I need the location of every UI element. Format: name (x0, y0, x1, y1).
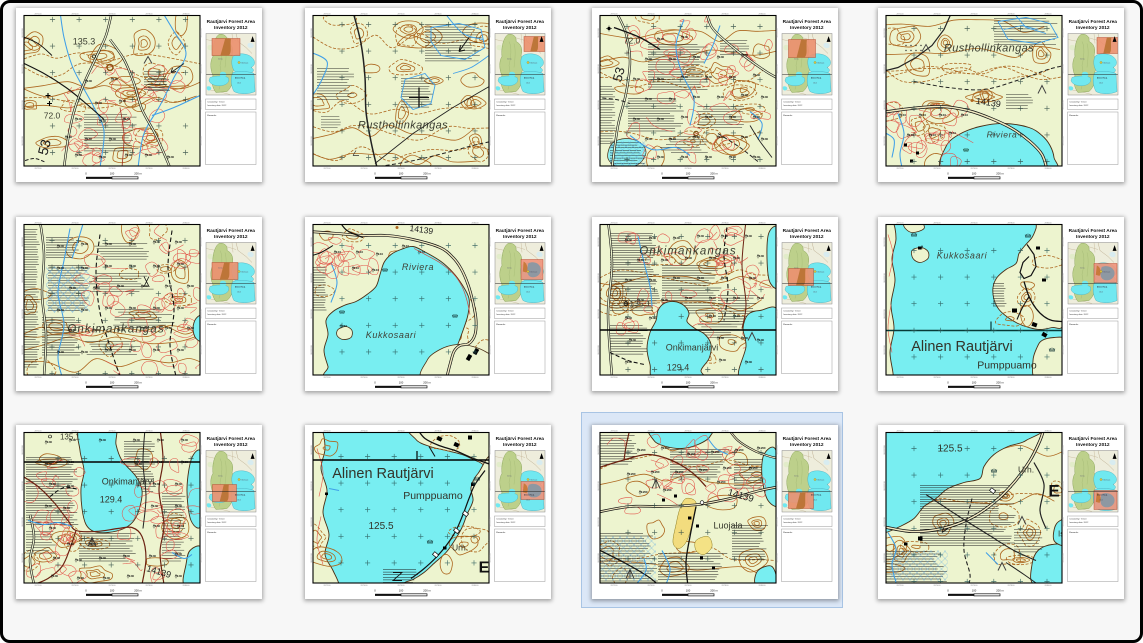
svg-text:287600: 287600 (109, 585, 117, 587)
svg-text:287800: 287800 (146, 431, 154, 433)
svg-text:68122300: 68122300 (776, 553, 778, 563)
svg-text:68122000: 68122000 (884, 28, 886, 38)
svg-text:Pumppuamo: Pumppuamo (977, 360, 1037, 372)
svg-text:0.30: 0.30 (179, 348, 185, 352)
svg-text:125.5: 125.5 (526, 500, 530, 502)
svg-text:0: 0 (947, 589, 949, 593)
svg-text:0: 0 (374, 381, 376, 385)
svg-text:0.30: 0.30 (627, 360, 633, 364)
svg-text:Inventory date: 2012: Inventory date: 2012 (207, 313, 227, 316)
svg-text:0.30: 0.30 (159, 438, 165, 442)
svg-text:Inventory 2012: Inventory 2012 (1076, 234, 1110, 240)
svg-text:287600: 287600 (398, 168, 406, 170)
svg-text:0.30: 0.30 (683, 35, 689, 39)
svg-text:0.30: 0.30 (735, 314, 741, 318)
svg-text:287400: 287400 (361, 431, 369, 433)
svg-text:100: 100 (110, 172, 115, 176)
svg-text:68122100: 68122100 (200, 64, 202, 74)
svg-text:68122100: 68122100 (884, 64, 886, 74)
svg-text:68122300: 68122300 (200, 553, 202, 563)
svg-text:0.30: 0.30 (723, 234, 729, 238)
svg-text:68122200: 68122200 (22, 100, 24, 110)
svg-text:0.10: 0.10 (951, 131, 957, 135)
svg-text:Onkimaan: Onkimaan (530, 480, 538, 482)
svg-text:68122000: 68122000 (884, 237, 886, 247)
svg-text:200 m: 200 m (134, 172, 142, 176)
svg-text:0.30: 0.30 (129, 574, 135, 578)
svg-text:Inventory date: 2012: Inventory date: 2012 (783, 104, 803, 107)
svg-text:0.30: 0.30 (711, 314, 717, 318)
svg-text:0.30: 0.30 (155, 524, 161, 528)
svg-text:Created by: T.User: Created by: T.User (496, 518, 514, 521)
svg-text:288000: 288000 (759, 14, 767, 16)
svg-text:68122100: 68122100 (311, 273, 313, 283)
svg-text:200 m: 200 m (423, 589, 431, 593)
svg-text:0.30: 0.30 (79, 576, 85, 580)
svg-text:Remarks:: Remarks: (783, 323, 793, 326)
svg-text:E: E (1048, 482, 1059, 501)
svg-text:125.5: 125.5 (813, 292, 817, 294)
svg-text:metsa: metsa (1080, 267, 1085, 270)
svg-text:287800: 287800 (1008, 168, 1016, 170)
svg-text:Alinen Rautj.: Alinen Rautj. (811, 286, 822, 289)
svg-text:100: 100 (686, 589, 691, 593)
svg-text:0.30: 0.30 (663, 298, 669, 302)
svg-text:0.30: 0.30 (169, 155, 175, 159)
svg-text:Onkimanjärvi: Onkimanjärvi (102, 477, 155, 487)
svg-text:0.30: 0.30 (189, 326, 195, 330)
svg-text:68122000: 68122000 (22, 28, 24, 38)
svg-text:Alinen Rautj.: Alinen Rautj. (811, 494, 822, 497)
svg-text:0.10: 0.10 (358, 250, 364, 254)
svg-text:Created by: T.User: Created by: T.User (783, 310, 801, 313)
svg-text:0: 0 (85, 381, 87, 385)
svg-text:68122100: 68122100 (598, 273, 600, 283)
svg-text:68122100: 68122100 (200, 481, 202, 491)
svg-text:287800: 287800 (435, 168, 443, 170)
svg-text:0.30: 0.30 (101, 556, 107, 560)
svg-text:125.5: 125.5 (1099, 83, 1103, 85)
svg-text:287200: 287200 (611, 14, 619, 16)
svg-text:0.30: 0.30 (151, 554, 157, 558)
svg-text:125.5: 125.5 (937, 444, 962, 455)
svg-text:125.5: 125.5 (237, 500, 241, 502)
svg-text:Urh.: Urh. (1018, 465, 1034, 475)
svg-text:287200: 287200 (35, 223, 43, 225)
svg-text:287400: 287400 (648, 168, 656, 170)
svg-text:200 m: 200 m (996, 381, 1004, 385)
svg-text:125.5: 125.5 (813, 500, 817, 502)
svg-text:Alinen Rautjärvi: Alinen Rautjärvi (911, 339, 1013, 355)
svg-text:Remarks:: Remarks: (496, 114, 506, 117)
svg-text:68122100: 68122100 (22, 273, 24, 283)
svg-text:68122300: 68122300 (884, 345, 886, 355)
svg-text:288000: 288000 (472, 168, 480, 170)
svg-text:Alinen Rautj.: Alinen Rautj. (1097, 494, 1108, 497)
svg-text:287800: 287800 (722, 585, 730, 587)
svg-text:287600: 287600 (398, 431, 406, 433)
svg-text:68122100: 68122100 (489, 481, 491, 491)
svg-text:0.30: 0.30 (671, 97, 677, 101)
svg-text:200 m: 200 m (423, 381, 431, 385)
svg-text:287600: 287600 (109, 14, 117, 16)
svg-text:Created by: T.User: Created by: T.User (783, 101, 801, 104)
svg-text:Rautjärvi Forest Area: Rautjärvi Forest Area (783, 228, 832, 234)
svg-text:Remarks:: Remarks: (207, 323, 217, 326)
svg-text:0.10: 0.10 (921, 113, 927, 117)
svg-text:0.200: 0.200 (677, 470, 684, 474)
svg-text:Inventory date: 2012: Inventory date: 2012 (1069, 104, 1089, 107)
svg-text:0.30: 0.30 (659, 77, 665, 81)
svg-text:Onkimaan: Onkimaan (530, 272, 538, 274)
svg-text:0.30: 0.30 (67, 135, 73, 139)
svg-text:200 m: 200 m (134, 589, 142, 593)
svg-text:68122000: 68122000 (1062, 445, 1064, 455)
svg-text:68122300: 68122300 (22, 345, 24, 355)
svg-text:287400: 287400 (934, 377, 942, 379)
svg-text:287600: 287600 (398, 585, 406, 587)
svg-text:Created by: T.User: Created by: T.User (1069, 310, 1087, 313)
svg-text:287800: 287800 (722, 14, 730, 16)
svg-text:Rautjärvi Forest Area: Rautjärvi Forest Area (496, 228, 545, 234)
svg-text:0.30: 0.30 (699, 276, 705, 280)
svg-text:135.3: 135.3 (73, 37, 96, 47)
svg-text:Inventory 2012: Inventory 2012 (503, 234, 537, 240)
svg-text:287800: 287800 (722, 223, 730, 225)
svg-text:0.30: 0.30 (69, 542, 75, 546)
svg-text:0.30: 0.30 (107, 348, 113, 352)
svg-text:0.10: 0.10 (342, 324, 348, 328)
svg-text:0.30: 0.30 (671, 57, 677, 61)
svg-text:287400: 287400 (648, 14, 656, 16)
svg-text:200 m: 200 m (423, 172, 431, 176)
svg-text:0.200: 0.200 (725, 466, 732, 470)
svg-text:0: 0 (374, 589, 376, 593)
svg-text:Inventory 2012: Inventory 2012 (790, 234, 824, 240)
svg-text:287200: 287200 (611, 168, 619, 170)
svg-text:0.30: 0.30 (719, 95, 725, 99)
svg-text:Inventory 2012: Inventory 2012 (214, 442, 248, 448)
svg-text:68122000: 68122000 (1062, 237, 1064, 247)
svg-text:0.30: 0.30 (59, 266, 65, 270)
svg-text:100: 100 (686, 381, 691, 385)
svg-text:0.30: 0.30 (107, 306, 113, 310)
svg-text:287600: 287600 (685, 585, 693, 587)
svg-text:68122200: 68122200 (311, 517, 313, 527)
svg-text:Rusthollinkangas: Rusthollinkangas (944, 43, 1034, 55)
svg-text:288000: 288000 (759, 377, 767, 379)
svg-text:287200: 287200 (324, 168, 332, 170)
svg-text:Created by: T.User: Created by: T.User (207, 310, 225, 313)
svg-text:0.30: 0.30 (71, 286, 77, 290)
svg-text:0.10: 0.10 (901, 113, 907, 117)
svg-text:287200: 287200 (897, 585, 905, 587)
svg-text:68122300: 68122300 (884, 136, 886, 146)
svg-text:0.200: 0.200 (665, 488, 672, 492)
svg-text:Remarks:: Remarks: (496, 323, 506, 326)
svg-text:metsa: metsa (1080, 58, 1085, 61)
svg-text:Onkimankangas: Onkimankangas (67, 324, 164, 336)
svg-text:0.30: 0.30 (647, 97, 653, 101)
svg-text:287400: 287400 (72, 14, 80, 16)
svg-text:Is: Is (1058, 530, 1064, 539)
svg-text:0.30: 0.30 (695, 55, 701, 59)
svg-text:288000: 288000 (1045, 14, 1053, 16)
svg-text:287200: 287200 (897, 377, 905, 379)
svg-text:Rautjärvi Forest Area: Rautjärvi Forest Area (496, 19, 545, 25)
svg-text:0.30: 0.30 (155, 482, 161, 486)
svg-text:0.30: 0.30 (83, 266, 89, 270)
svg-text:0.200: 0.200 (639, 448, 646, 452)
svg-text:287400: 287400 (934, 168, 942, 170)
svg-text:0.30: 0.30 (723, 276, 729, 280)
svg-text:Created by: T.User: Created by: T.User (1069, 518, 1087, 521)
svg-text:287400: 287400 (934, 14, 942, 16)
svg-text:0.30: 0.30 (659, 117, 665, 121)
svg-text:287600: 287600 (685, 377, 693, 379)
svg-text:68122000: 68122000 (311, 237, 313, 247)
svg-text:0.200: 0.200 (629, 472, 636, 476)
svg-text:0.200: 0.200 (653, 470, 660, 474)
svg-text:0.30: 0.30 (177, 552, 183, 556)
svg-text:Onkimaan: Onkimaan (241, 480, 249, 482)
svg-text:68122000: 68122000 (200, 28, 202, 38)
svg-text:287800: 287800 (146, 223, 154, 225)
svg-text:0.30: 0.30 (137, 462, 143, 466)
svg-text:0: 0 (661, 589, 663, 593)
svg-text:287600: 287600 (971, 14, 979, 16)
svg-text:0.200: 0.200 (759, 446, 766, 450)
svg-text:Inventory 2012: Inventory 2012 (790, 25, 824, 31)
svg-text:68122200: 68122200 (22, 517, 24, 527)
svg-text:0.30: 0.30 (189, 284, 195, 288)
svg-text:0.30: 0.30 (763, 95, 769, 99)
svg-text:Onkimanjärvi: Onkimanjärvi (666, 343, 719, 353)
svg-text:287400: 287400 (648, 223, 656, 225)
svg-text:0.30: 0.30 (755, 73, 761, 77)
svg-text:287600: 287600 (685, 14, 693, 16)
svg-text:0.30: 0.30 (167, 284, 173, 288)
svg-text:0.30: 0.30 (751, 276, 757, 280)
svg-text:0.30: 0.30 (675, 276, 681, 280)
svg-text:Inventory 2012: Inventory 2012 (790, 442, 824, 448)
svg-text:0.200: 0.200 (701, 468, 708, 472)
svg-text:287600: 287600 (109, 431, 117, 433)
svg-text:0.30: 0.30 (719, 55, 725, 59)
svg-text:68122200: 68122200 (598, 309, 600, 319)
svg-text:Alinen Rautj.: Alinen Rautj. (524, 494, 535, 497)
svg-text:68122000: 68122000 (489, 445, 491, 455)
svg-text:Alinen Rautj.: Alinen Rautj. (524, 77, 535, 80)
svg-text:68122200: 68122200 (1062, 309, 1064, 319)
svg-text:287200: 287200 (324, 431, 332, 433)
svg-text:68122000: 68122000 (776, 445, 778, 455)
svg-text:Inventory 2012: Inventory 2012 (214, 234, 248, 240)
svg-text:287600: 287600 (685, 223, 693, 225)
svg-text:287200: 287200 (35, 377, 43, 379)
svg-text:68122000: 68122000 (598, 445, 600, 455)
svg-text:0.200: 0.200 (713, 450, 720, 454)
svg-text:Onkimaan: Onkimaan (817, 63, 825, 65)
svg-text:287400: 287400 (934, 223, 942, 225)
svg-text:0.30: 0.30 (639, 258, 645, 262)
svg-text:0.30: 0.30 (759, 296, 765, 300)
svg-text:0.30: 0.30 (647, 137, 653, 141)
svg-text:0.30: 0.30 (763, 137, 769, 141)
svg-text:Rautjärvi Forest Area: Rautjärvi Forest Area (207, 19, 256, 25)
svg-text:Rautjärvi Forest Area: Rautjärvi Forest Area (783, 19, 832, 25)
svg-text:0.10: 0.10 (354, 266, 360, 270)
svg-text:287800: 287800 (146, 377, 154, 379)
svg-text:68122200: 68122200 (776, 100, 778, 110)
svg-text:68122300: 68122300 (200, 136, 202, 146)
svg-text:0.30: 0.30 (671, 137, 677, 141)
svg-text:Alinen Rautj.: Alinen Rautj. (1097, 77, 1108, 80)
svg-text:68122200: 68122200 (1062, 100, 1064, 110)
svg-text:287200: 287200 (324, 585, 332, 587)
svg-text:0: 0 (374, 172, 376, 176)
svg-text:0.30: 0.30 (107, 242, 113, 246)
svg-text:200 m: 200 m (996, 172, 1004, 176)
svg-text:287600: 287600 (109, 168, 117, 170)
svg-text:287600: 287600 (398, 14, 406, 16)
svg-text:68122300: 68122300 (311, 345, 313, 355)
svg-text:287400: 287400 (648, 431, 656, 433)
svg-text:287200: 287200 (611, 377, 619, 379)
svg-text:metsa: metsa (794, 475, 799, 478)
svg-text:288000: 288000 (183, 377, 191, 379)
svg-text:287400: 287400 (72, 377, 80, 379)
svg-text:0.30: 0.30 (177, 574, 183, 578)
svg-text:68122200: 68122200 (1062, 517, 1064, 527)
svg-text:Created by: T.User: Created by: T.User (496, 101, 514, 104)
svg-text:68122000: 68122000 (1062, 28, 1064, 38)
svg-text:Inventory date: 2012: Inventory date: 2012 (783, 521, 803, 524)
svg-text:68122100: 68122100 (598, 64, 600, 74)
svg-text:68122100: 68122100 (1062, 273, 1064, 283)
svg-text:287200: 287200 (324, 14, 332, 16)
svg-text:metsa: metsa (794, 58, 799, 61)
svg-text:0.30: 0.30 (719, 336, 725, 340)
svg-text:0.30: 0.30 (687, 296, 693, 300)
svg-text:288000: 288000 (1045, 431, 1053, 433)
svg-text:68122300: 68122300 (311, 136, 313, 146)
svg-text:287600: 287600 (971, 223, 979, 225)
svg-text:287800: 287800 (1008, 223, 1016, 225)
svg-text:287600: 287600 (971, 377, 979, 379)
svg-text:100: 100 (399, 172, 404, 176)
svg-text:0: 0 (947, 172, 949, 176)
svg-text:Pumppuamo: Pumppuamo (403, 490, 463, 502)
svg-text:68122100: 68122100 (884, 481, 886, 491)
svg-text:Inventory 2012: Inventory 2012 (1076, 25, 1110, 31)
svg-text:Alinen Rautj.: Alinen Rautj. (235, 286, 246, 289)
svg-text:68122300: 68122300 (598, 345, 600, 355)
svg-text:287200: 287200 (324, 223, 332, 225)
svg-text:0.200: 0.200 (689, 452, 696, 456)
svg-text:129.4: 129.4 (667, 363, 690, 373)
svg-text:0.30: 0.30 (719, 135, 725, 139)
svg-text:100: 100 (972, 381, 977, 385)
svg-text:0.30: 0.30 (179, 306, 185, 310)
svg-text:68122200: 68122200 (200, 100, 202, 110)
svg-text:287200: 287200 (897, 14, 905, 16)
svg-text:288000: 288000 (472, 431, 480, 433)
svg-text:100: 100 (972, 589, 977, 593)
svg-text:0.30: 0.30 (743, 135, 749, 139)
svg-text:metsa: metsa (507, 267, 512, 270)
svg-text:68122300: 68122300 (200, 345, 202, 355)
svg-text:135.1: 135.1 (60, 433, 81, 442)
svg-text:68122000: 68122000 (311, 445, 313, 455)
svg-text:0.30: 0.30 (159, 460, 165, 464)
svg-text:288000: 288000 (183, 168, 191, 170)
svg-text:0.30: 0.30 (759, 338, 765, 342)
svg-text:Rautjärvi Forest Area: Rautjärvi Forest Area (207, 436, 256, 442)
svg-text:0.30: 0.30 (69, 484, 75, 488)
svg-text:Rautjärvi Forest Area: Rautjärvi Forest Area (1069, 19, 1118, 25)
svg-text:Inventory date: 2012: Inventory date: 2012 (1069, 313, 1089, 316)
svg-text:0.30: 0.30 (59, 308, 65, 312)
svg-text:68122200: 68122200 (776, 517, 778, 527)
svg-text:68122100: 68122100 (311, 481, 313, 491)
svg-text:287800: 287800 (435, 585, 443, 587)
svg-text:0.50: 0.50 (125, 117, 131, 121)
svg-text:287800: 287800 (435, 223, 443, 225)
svg-text:0.30: 0.30 (87, 79, 93, 83)
svg-text:68122300: 68122300 (489, 136, 491, 146)
svg-text:0.30: 0.30 (683, 115, 689, 119)
svg-text:metsa: metsa (507, 475, 512, 478)
svg-text:68122200: 68122200 (776, 309, 778, 319)
svg-text:68122100: 68122100 (22, 64, 24, 74)
svg-text:68122300: 68122300 (489, 553, 491, 563)
svg-text:0.30: 0.30 (683, 75, 689, 79)
svg-text:287800: 287800 (146, 14, 154, 16)
svg-text:0.10: 0.10 (404, 244, 410, 248)
svg-text:0.30: 0.30 (101, 155, 107, 159)
svg-text:Inventory 2012: Inventory 2012 (1076, 442, 1110, 448)
svg-text:287800: 287800 (435, 431, 443, 433)
svg-text:0.10: 0.10 (963, 113, 969, 117)
svg-text:68122000: 68122000 (776, 237, 778, 247)
svg-text:200 m: 200 m (710, 381, 718, 385)
svg-text:288000: 288000 (183, 14, 191, 16)
svg-text:287200: 287200 (897, 223, 905, 225)
svg-text:288000: 288000 (1045, 377, 1053, 379)
svg-text:0.30: 0.30 (113, 77, 119, 81)
svg-text:288000: 288000 (183, 585, 191, 587)
svg-text:0.30: 0.30 (101, 438, 107, 442)
svg-text:200 m: 200 m (996, 589, 1004, 593)
svg-text:288000: 288000 (1045, 223, 1053, 225)
svg-text:287200: 287200 (611, 585, 619, 587)
svg-text:0: 0 (661, 172, 663, 176)
svg-text:0.30: 0.30 (659, 37, 665, 41)
svg-text:288000: 288000 (759, 431, 767, 433)
svg-text:0.30: 0.30 (55, 556, 61, 560)
svg-text:0.200: 0.200 (719, 480, 726, 484)
svg-text:100: 100 (110, 381, 115, 385)
svg-text:metsa: metsa (218, 475, 223, 478)
svg-text:287400: 287400 (361, 14, 369, 16)
svg-text:287400: 287400 (361, 377, 369, 379)
svg-text:metsa: metsa (1080, 475, 1085, 478)
svg-text:0.30: 0.30 (95, 286, 101, 290)
svg-text:Onkimaan: Onkimaan (241, 272, 249, 274)
svg-text:Urh.: Urh. (452, 543, 468, 553)
svg-text:E: E (479, 560, 490, 577)
